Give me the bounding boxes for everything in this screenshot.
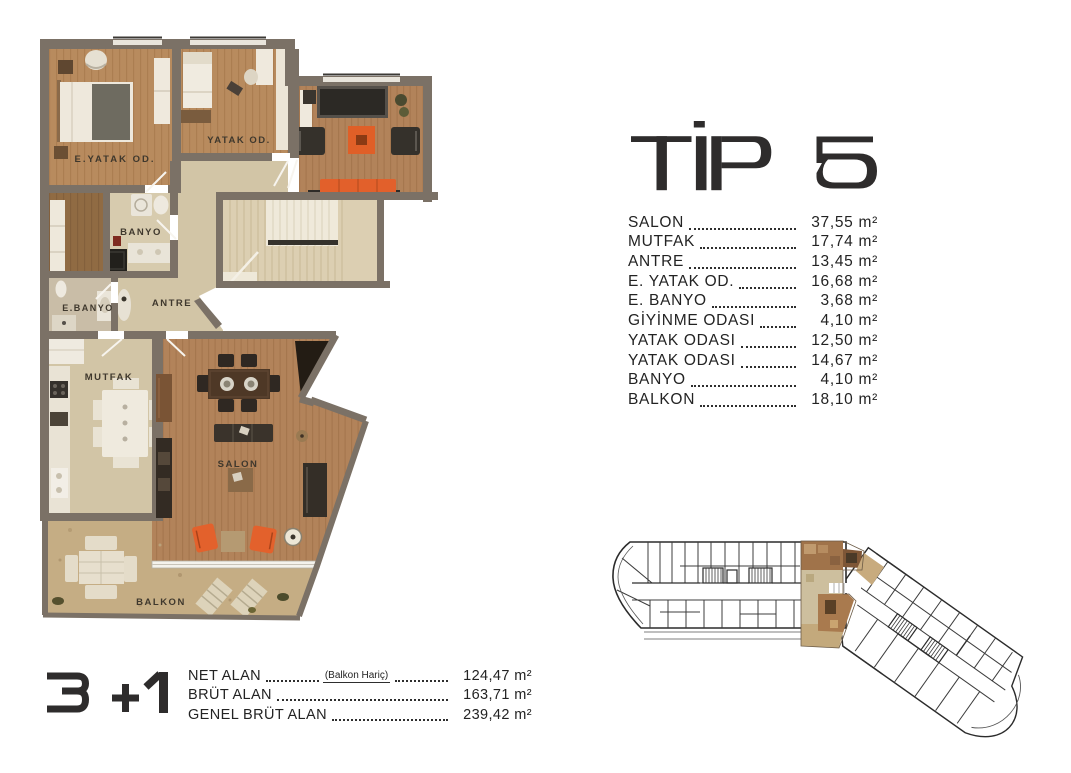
- svg-text:SALON: SALON: [218, 459, 259, 470]
- svg-text:MUTFAK: MUTFAK: [85, 372, 134, 383]
- svg-text:BALKON: BALKON: [136, 597, 186, 608]
- svg-text:BANYO: BANYO: [120, 227, 162, 238]
- svg-text:E.YATAK OD.: E.YATAK OD.: [75, 154, 156, 165]
- svg-text:YATAK OD.: YATAK OD.: [207, 135, 270, 146]
- svg-text:ANTRE: ANTRE: [152, 298, 192, 309]
- svg-text:E.BANYO: E.BANYO: [62, 303, 114, 313]
